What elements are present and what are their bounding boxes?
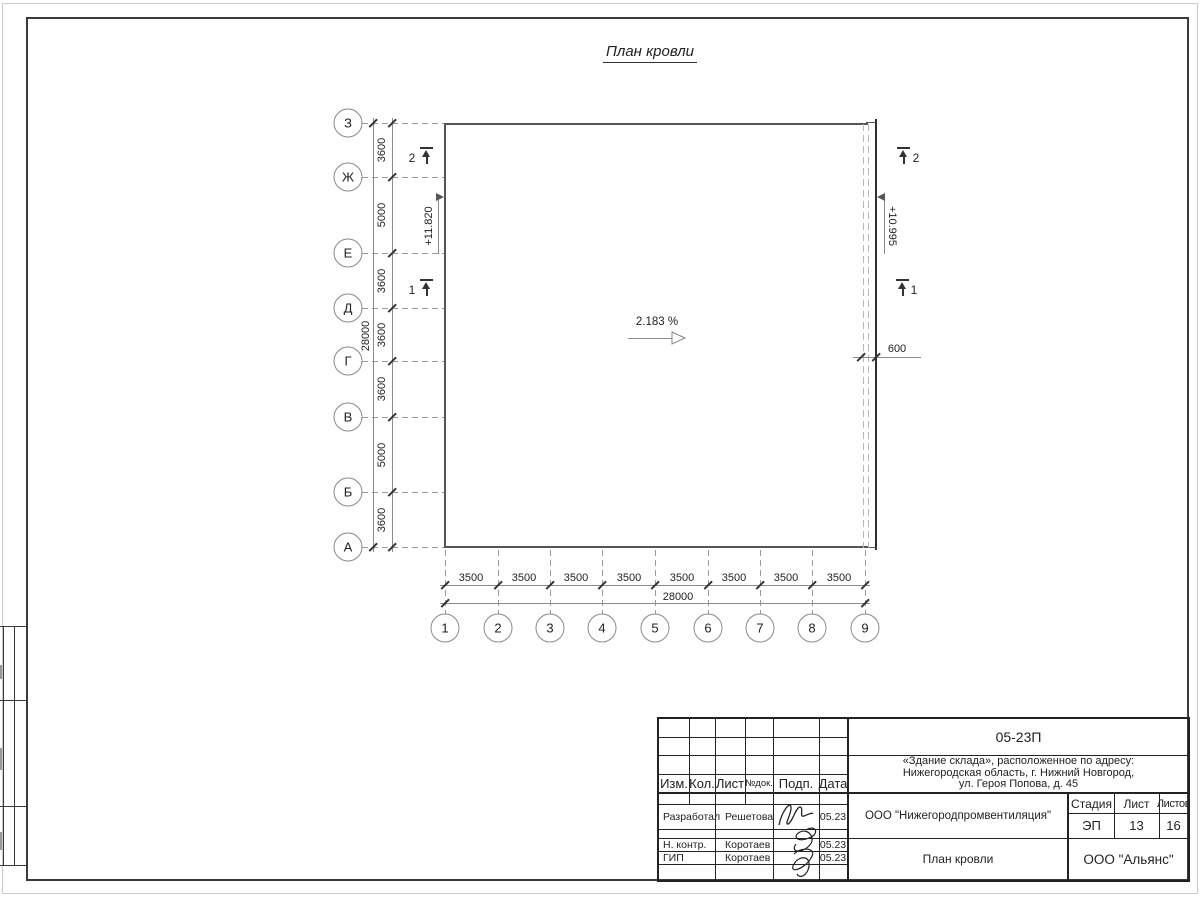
axis-gridline (362, 361, 444, 362)
axis-gridline (362, 308, 444, 309)
roof-edge-right (875, 119, 877, 550)
side-stamp-line (0, 865, 27, 866)
axis-label: Б (344, 485, 353, 500)
axis-gridline (362, 123, 444, 124)
axis-label: 5 (651, 621, 658, 636)
axis-bubble: 1 (431, 614, 460, 643)
project-line: ул. Героя Попова, д. 45 (959, 779, 1078, 791)
section-mark-icon (903, 155, 905, 164)
axis-label: З (344, 116, 352, 131)
sheet-number: 13 (1114, 813, 1159, 838)
person-name: Решетова (725, 804, 773, 829)
side-stamp-clipped-text (0, 832, 2, 850)
axis-bubble: Г (334, 347, 363, 376)
drawing-sheet: План кровли З Ж Е Д Г В Б А 3600 5000 36… (0, 0, 1200, 900)
titleblock-line (715, 719, 716, 880)
axis-label: В (344, 410, 353, 425)
axis-bubble: 6 (694, 614, 723, 643)
side-stamp-clipped-text (0, 665, 2, 679)
side-stamp-line (0, 806, 27, 807)
role-label: Разработал (663, 804, 715, 829)
dim-text: 600 (888, 343, 906, 355)
parapet-dashed-line (863, 124, 864, 548)
axis-gridline (362, 547, 444, 548)
section-number: 1 (911, 283, 918, 297)
dim-text: 3500 (774, 572, 798, 584)
signature-icon (782, 824, 824, 880)
axis-bubble: 8 (798, 614, 827, 643)
roof-edge-top-seg (866, 122, 876, 123)
document-code: 05-23П (849, 719, 1188, 755)
dim-text: 3500 (512, 572, 536, 584)
axis-label: 9 (861, 621, 868, 636)
axis-gridline (362, 492, 444, 493)
stage-value: ЭП (1069, 813, 1114, 838)
slope-arrow-head (671, 331, 687, 345)
dim-text: 3600 (376, 138, 388, 162)
axis-label: 7 (756, 621, 763, 636)
dim-text: 3500 (722, 572, 746, 584)
dim-text: 3500 (459, 572, 483, 584)
axis-label: Д (344, 301, 353, 316)
axis-label: А (344, 540, 353, 555)
drawing-name: План кровли (849, 838, 1067, 880)
section-mark-icon (420, 279, 433, 281)
side-stamp-line (0, 626, 27, 627)
dim-text: 3500 (617, 572, 641, 584)
axis-label: 6 (704, 621, 711, 636)
elevation-arrow-icon (436, 193, 444, 201)
section-mark-icon (897, 147, 910, 149)
titleblock-line (773, 719, 774, 880)
title-block: Изм. Кол. Лист №док. Подп. Дата Разработ… (657, 717, 1190, 882)
role-label: Н. контр. (663, 838, 715, 851)
side-stamp-clipped-text (0, 748, 2, 770)
col-header-list: Лист (715, 774, 745, 792)
parapet-dashed-line (868, 124, 869, 548)
elevation-value: +11.820 (423, 206, 435, 245)
axis-label: Е (344, 246, 353, 261)
axis-bubble: 7 (746, 614, 775, 643)
section-mark-icon (426, 287, 428, 296)
elevation-leader (438, 197, 439, 254)
axis-gridline (362, 253, 444, 254)
dimension-line (392, 118, 393, 552)
axis-bubble: 2 (484, 614, 513, 643)
project-description: «Здание склада», расположенное по адресу… (849, 755, 1188, 792)
axis-label: 1 (441, 621, 448, 636)
slope-arrow-shaft (628, 338, 673, 339)
design-org: ООО "Нижегородпромвентиляция" (849, 794, 1067, 838)
sheet-title: План кровли (603, 43, 697, 63)
sheet-header: Лист (1114, 794, 1159, 813)
section-mark-icon (420, 147, 433, 149)
axis-bubble: Ж (334, 163, 363, 192)
axis-bubble: З (334, 109, 363, 138)
elevation-value: +10.995 (886, 206, 898, 246)
dimension-line (853, 357, 921, 358)
axis-bubble: Д (334, 294, 363, 323)
col-header-ndok: №док. (745, 774, 773, 792)
dim-text: 3500 (670, 572, 694, 584)
side-stamp-line (3, 626, 4, 866)
axis-bubble: 9 (851, 614, 880, 643)
sheets-total: 16 (1159, 813, 1188, 838)
side-stamp-line (0, 700, 27, 701)
dim-text: 5000 (376, 443, 388, 467)
axis-bubble: А (334, 533, 363, 562)
axis-label: 4 (598, 621, 605, 636)
axis-label: Ж (342, 170, 354, 185)
col-header-data: Дата (819, 774, 847, 792)
col-header-kol: Кол. (689, 774, 715, 792)
dim-text: 5000 (376, 203, 388, 227)
section-number: 2 (409, 151, 416, 165)
axis-bubble: Е (334, 239, 363, 268)
dim-text: 3600 (376, 377, 388, 401)
section-number: 1 (409, 283, 416, 297)
axis-label: 3 (546, 621, 553, 636)
section-mark-icon (896, 279, 909, 281)
section-mark-icon (902, 287, 904, 296)
person-name: Коротаев (725, 838, 773, 851)
axis-gridline (362, 417, 444, 418)
dim-text: 3600 (376, 508, 388, 532)
axis-bubble: 5 (641, 614, 670, 643)
dim-text: 3600 (376, 323, 388, 347)
stage-header: Стадия (1069, 794, 1114, 813)
axis-bubble: 3 (536, 614, 565, 643)
dimension-line (373, 118, 374, 552)
axis-label: 8 (808, 621, 815, 636)
dim-text-total: 28000 (663, 591, 694, 603)
axis-label: Г (344, 354, 351, 369)
axis-bubble: Б (334, 478, 363, 507)
slope-label: 2.183 % (636, 316, 678, 328)
dimension-line (440, 603, 870, 604)
dim-text: 3500 (827, 572, 851, 584)
role-label: ГИП (663, 851, 715, 864)
firm-name: ООО "Альянс" (1069, 838, 1188, 880)
sheets-header: Листов (1159, 794, 1188, 813)
section-mark-icon (426, 155, 428, 164)
section-number: 2 (913, 151, 920, 165)
side-stamp-line (14, 626, 15, 866)
roof-outline (444, 123, 868, 548)
axis-label: 2 (494, 621, 501, 636)
dim-text: 3600 (376, 269, 388, 293)
person-name: Коротаев (725, 851, 773, 864)
axis-bubble: В (334, 403, 363, 432)
titleblock-line (659, 737, 847, 738)
axis-gridline (362, 177, 444, 178)
dim-text: 3500 (564, 572, 588, 584)
dim-text-total: 28000 (360, 321, 372, 352)
axis-bubble: 4 (588, 614, 617, 643)
col-header-podp: Подп. (773, 774, 819, 792)
elevation-leader (884, 197, 885, 254)
col-header-izm: Изм. (659, 774, 689, 792)
elevation-arrow-icon (877, 193, 885, 201)
